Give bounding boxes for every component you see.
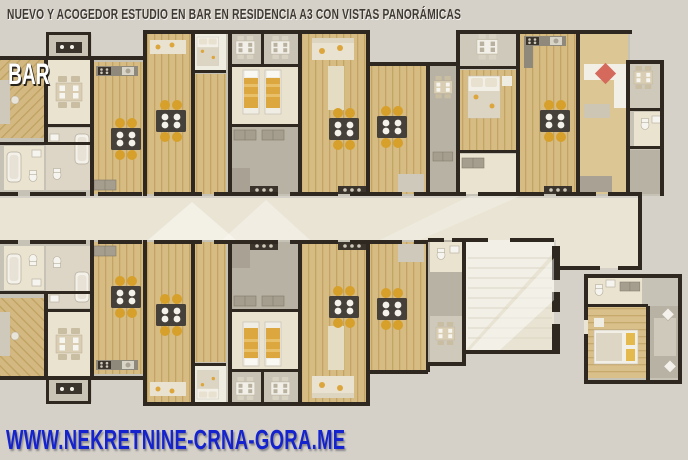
listing-image: NUEVO Y ACOGEDOR ESTUDIO EN BAR EN RESID… bbox=[0, 0, 688, 460]
apartment-bottom-right bbox=[584, 274, 682, 384]
bed-icon bbox=[197, 37, 219, 66]
website-url: WWW.NEKRETNINE-CRNA-GORA.ME bbox=[6, 426, 345, 454]
kitchen-icon bbox=[524, 36, 566, 46]
location-label: BAR bbox=[8, 60, 50, 90]
bed-icon bbox=[594, 330, 638, 364]
kitchen-icon bbox=[96, 66, 138, 76]
building-bottom-left-wing bbox=[0, 240, 430, 406]
bed-icon bbox=[468, 76, 500, 118]
building-top-left-wing bbox=[0, 30, 430, 196]
floor-plan bbox=[0, 0, 688, 460]
listing-title: NUEVO Y ACOGEDOR ESTUDIO EN BAR EN RESID… bbox=[7, 7, 461, 22]
